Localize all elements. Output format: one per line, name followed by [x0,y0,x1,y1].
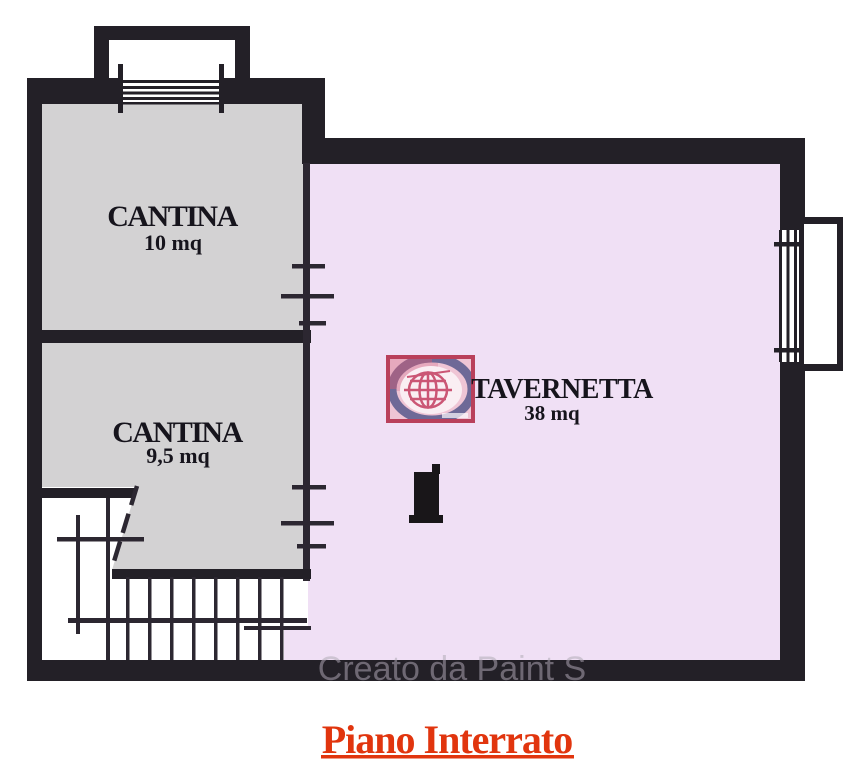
svg-text:CANTINA: CANTINA [107,200,238,233]
svg-text:9,5 mq: 9,5 mq [146,443,210,468]
svg-text:10 mq: 10 mq [144,230,203,255]
svg-text:38 mq: 38 mq [524,401,580,425]
